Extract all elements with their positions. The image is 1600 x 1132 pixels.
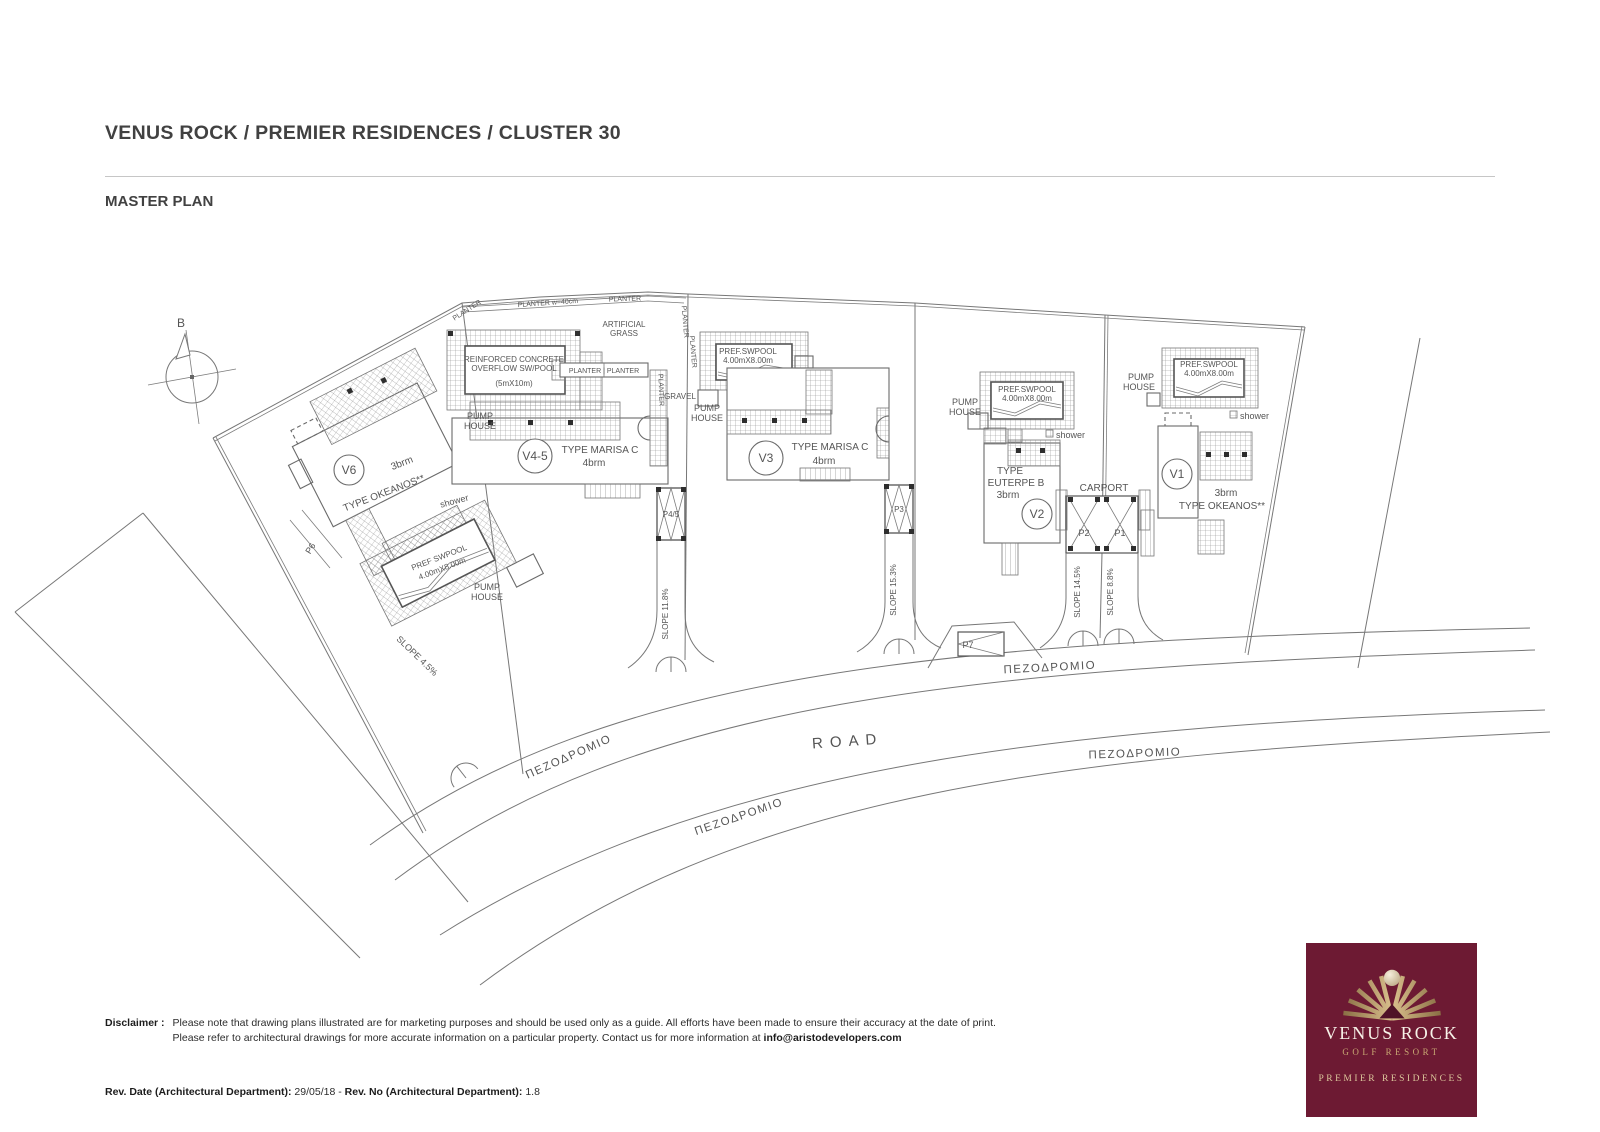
v3-pool-label: PREF.SWPOOL <box>719 347 777 356</box>
v3-slope-label: SLOPE 15.3% <box>889 564 898 616</box>
logo-tagline: GOLF RESORT <box>1342 1047 1440 1057</box>
pump-label: HOUSE <box>471 592 503 602</box>
v45-type: TYPE MARISA C <box>562 445 639 456</box>
parking-p1-label: P1 <box>1114 528 1125 538</box>
v2-type2: EUTERPE B <box>988 478 1045 489</box>
v45-grass-label: ARTIFICIAL <box>603 320 647 329</box>
v1-pump-house <box>1147 393 1160 406</box>
v1-type: TYPE OKEANOS** <box>1179 501 1265 512</box>
v3-type: TYPE MARISA C <box>792 442 869 453</box>
v2-beds: 3brm <box>997 490 1020 501</box>
logo-name: VENUS ROCK <box>1324 1023 1459 1044</box>
planter-label: PLANTER <box>688 335 698 368</box>
disclaimer-text: Please note that drawing plans illustrat… <box>173 1016 996 1046</box>
v45-parking-label: P4/5 <box>663 510 680 519</box>
planter-label: PLANTER <box>656 374 664 407</box>
lot-v1: PREF.SWPOOL 4.00mX8.00m PUMP HOUSE showe… <box>1123 348 1269 556</box>
villa-id: V6 <box>342 463 357 477</box>
planter-label: PLANTER <box>680 305 690 338</box>
v2-shower-label: shower <box>1056 430 1085 440</box>
master-plan-page: VENUS ROCK / PREMIER RESIDENCES / CLUSTE… <box>0 0 1600 1132</box>
carport <box>1066 496 1138 553</box>
v2-slope1-label: SLOPE 14.5% <box>1073 566 1082 618</box>
p7-layby: P7 <box>928 622 1042 668</box>
pump-label: HOUSE <box>949 407 981 417</box>
v45-pool-size: (5mX10m) <box>495 379 533 388</box>
shower-icon <box>1046 430 1053 437</box>
road-label: ROAD <box>812 731 884 753</box>
v45-slope-label: SLOPE 11.8% <box>661 589 670 640</box>
v2-pool-label: PREF.SWPOOL <box>998 385 1056 394</box>
pump-label: PUMP <box>1128 372 1154 382</box>
v2-type1: TYPE <box>997 466 1023 477</box>
pump-label: PUMP <box>474 582 500 592</box>
pump-label: PUMP <box>952 397 978 407</box>
revision-line: Rev. Date (Architectural Department): 29… <box>105 1086 540 1098</box>
v2-slope2-label: SLOPE 8.8% <box>1106 568 1115 615</box>
pump-label: PUMP <box>467 411 493 421</box>
v45-beds: 4brm <box>583 458 606 469</box>
v45-gravel-label: GRAVEL <box>664 392 696 401</box>
v3-beds: 4brm <box>813 456 836 467</box>
lot-v45: PLANTER | PLANTER PLANTER PLANTER w=40cm… <box>447 295 714 672</box>
parking-p2-label: P2 <box>1078 528 1089 538</box>
v3-parking-label: P3 <box>894 505 904 514</box>
villa-id: V3 <box>759 451 774 465</box>
lot-v2: PREF.SWPOOL 4.00mX8.00m PUMP HOUSE showe… <box>949 372 1163 648</box>
pump-label: HOUSE <box>464 421 496 431</box>
venus-rock-logo: VENUS ROCK GOLF RESORT PREMIER RESIDENCE… <box>1306 943 1477 1117</box>
villa-id: V1 <box>1170 467 1185 481</box>
pump-label: HOUSE <box>691 413 723 423</box>
villa-id: V4-5 <box>522 449 548 463</box>
logo-sub: PREMIER RESIDENCES <box>1318 1074 1464 1084</box>
v1-beds: 3brm <box>1215 488 1238 499</box>
carport-label: CARPORT <box>1080 483 1129 494</box>
pump-label: HOUSE <box>1123 382 1155 392</box>
v6-slope-label: SLOPE 4.5% <box>395 634 440 678</box>
v45-stairs <box>585 484 640 498</box>
shower-icon <box>1230 411 1237 418</box>
v2-pool-size: 4.00mX8.00m <box>1002 394 1052 403</box>
planter-label: PLANTER | PLANTER <box>569 368 639 375</box>
v1-pool-size: 4.00mX8.00m <box>1184 369 1234 378</box>
v3-stairs <box>800 468 850 481</box>
v45-pool-label1: REINFORCED CONCRETE <box>464 355 564 364</box>
sidewalk-label: ΠΕΖΟΔΡΟΜΙΟ <box>1088 746 1181 761</box>
planter-label: PLANTER w=40cm <box>517 298 578 309</box>
v45-pool-label2: OVERFLOW SW/POOL <box>471 364 557 373</box>
v1-pool-label: PREF.SWPOOL <box>1180 360 1238 369</box>
v1-shower-label: shower <box>1240 411 1269 421</box>
disclaimer-label: Disclaimer : <box>105 1016 165 1046</box>
road-and-sidewalks: ΠΕΖΟΔΡΟΜΙΟ ΠΕΖΟΔΡΟΜΙΟ ΠΕΖΟΔΡΟΜΙΟ ΠΕΖΟΔΡΟ… <box>370 628 1550 985</box>
planter-label: PLANTER <box>609 295 642 303</box>
logo-fan-icon <box>1329 965 1455 1025</box>
pump-label: PUMP <box>694 403 720 413</box>
sidewalk-label: ΠΕΖΟΔΡΟΜΙΟ <box>693 796 785 838</box>
v6-parking-label: P6 <box>303 541 317 556</box>
villa-id: V2 <box>1030 507 1045 521</box>
p7-label: P7 <box>962 640 973 650</box>
disclaimer-email: info@aristodevelopers.com <box>764 1032 902 1044</box>
disclaimer-block: Disclaimer : Please note that drawing pl… <box>105 1016 1005 1046</box>
v3-pool-size: 4.00mX8.00m <box>723 356 773 365</box>
north-label: B <box>177 316 185 330</box>
north-arrow-icon: B <box>148 316 236 424</box>
v45-grass-label: GRASS <box>610 329 638 338</box>
lot-v3: PREF.SWPOOL 4.00mX8.00m PUMP HOUSE V3 TY… <box>691 332 941 654</box>
